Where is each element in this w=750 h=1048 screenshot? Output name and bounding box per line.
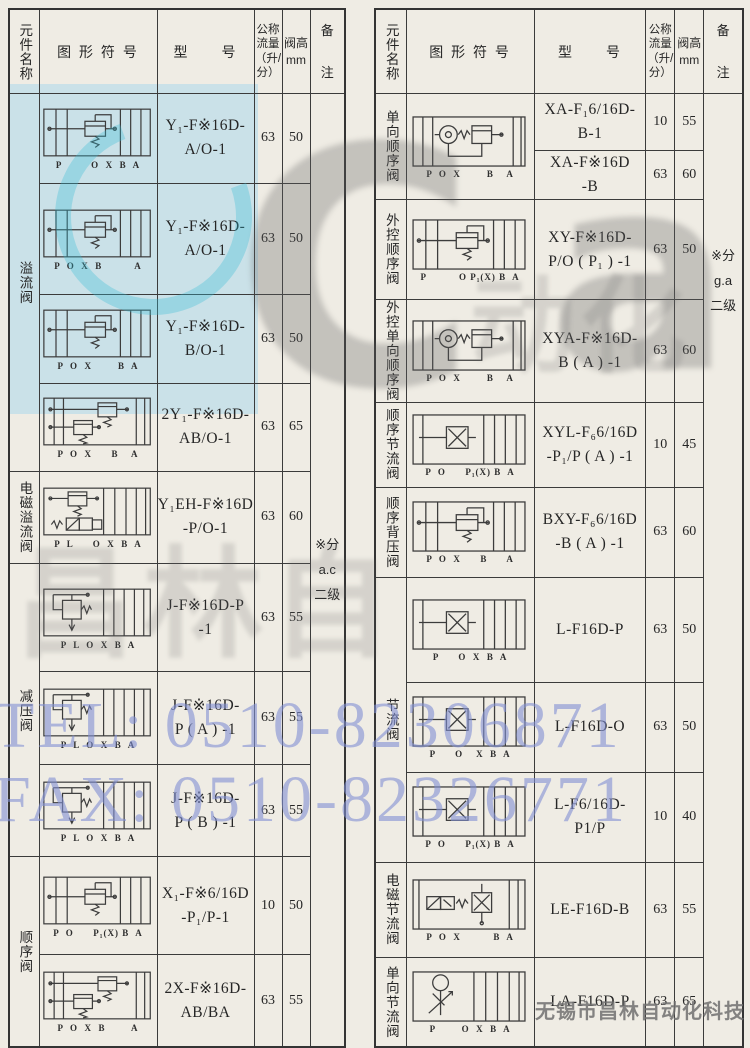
flow-cell: 63 <box>646 682 675 772</box>
model-cell: Y₁-F※16D- A/O-1 <box>157 94 254 183</box>
port-labels: P L O X B A <box>61 833 136 843</box>
table-row: 溢流阀 P O X B A Y₁-F※16D- A/O-1 63 50 ※分 a… <box>9 94 345 183</box>
flow-cell: 63 <box>254 183 282 294</box>
throttle-valve-symbol-icon <box>411 785 529 838</box>
throttle-valve-symbol-icon <box>411 695 529 748</box>
height-cell: 65 <box>675 957 704 1047</box>
flow-cell: 63 <box>254 94 282 183</box>
table-row: 外控顺序阀 P O P₁(X) B A XY-F※16D- P/O ( P₁ )… <box>375 200 743 300</box>
flow-cell: 63 <box>254 564 282 672</box>
symbol-cell: P L O X B A <box>39 564 157 672</box>
table-row: 电磁节流阀 P O X B A LE-F16D-B 63 55 <box>375 862 743 957</box>
model-cell: L-F16D-P <box>534 577 646 682</box>
solenoid-throttle-valve-symbol-icon <box>411 878 529 931</box>
height-cell: 55 <box>675 862 704 957</box>
height-cell: 55 <box>282 955 310 1048</box>
symbol-cell: P O X B A <box>39 183 157 294</box>
symbol-cell: P O X B A <box>406 682 534 772</box>
port-labels: P O X B A <box>57 1023 138 1033</box>
flow-cell: 63 <box>646 862 675 957</box>
model-cell: XY-F※16D- P/O ( P₁ ) -1 <box>534 200 646 300</box>
component-name-cell: 节流阀 <box>375 577 406 862</box>
model-cell: J-F※16D-P -1 <box>157 564 254 672</box>
table-row: 节流阀 P O X B A L-F16D-P 63 50 <box>375 577 743 682</box>
table-row: P O X B A Y₁-F※16D- B/O-1 63 50 <box>9 294 345 383</box>
table-row: P O X B A 2Y₁-F※16D- AB/O-1 63 65 <box>9 384 345 471</box>
flow-cell: 63 <box>646 577 675 682</box>
model-cell: XYA-F※16D- B ( A ) -1 <box>534 300 646 403</box>
flow-cell: 10 <box>646 772 675 862</box>
component-name-cell: 顺序背压阀 <box>375 487 406 577</box>
remark-cell: ※分 g.a 二级 <box>704 94 743 1048</box>
flow-cell: 63 <box>254 672 282 765</box>
model-cell: Y₁EH-F※16D -P/O-1 <box>157 471 254 564</box>
remark-cell: ※分 a.c 二级 <box>310 94 345 1048</box>
table-row: 电磁溢流阀 P L O X B A Y₁EH-F※16D -P/O-1 63 6… <box>9 471 345 564</box>
flow-cell: 63 <box>646 957 675 1047</box>
component-name-cell: 外控单向顺序阀 <box>375 300 406 403</box>
height-cell: 40 <box>675 772 704 862</box>
model-cell: XYL-F₆6/16D -P₁/P ( A ) -1 <box>534 402 646 487</box>
table-row: P L O X B A J-F※16D- P ( A ) -1 63 55 <box>9 672 345 765</box>
col-header-flow: 公称 流量 （升/ 分） <box>646 9 675 94</box>
table-row: P L O X B A J-F※16D- P ( B ) -1 63 55 <box>9 764 345 857</box>
table-row: P O X B A L-F16D-O 63 50 <box>375 682 743 772</box>
component-name-cell: 单向节流阀 <box>375 957 406 1047</box>
model-cell: J-F※16D- P ( A ) -1 <box>157 672 254 765</box>
catalog-tables: 元件名称 图 形 符 号 型 号 公称 流量 （升/ 分） 阀高 mm 备 注 … <box>8 8 744 1048</box>
model-cell: XA-F※16D -B <box>534 151 646 200</box>
model-cell: X₁-F※6/16D -P₁/P-1 <box>157 857 254 955</box>
relief-valve-symbol-icon <box>42 207 154 260</box>
check-throttle-valve-symbol-icon <box>411 970 529 1023</box>
port-labels: P O X B A <box>426 169 514 179</box>
table-header-row: 元件名称 图 形 符 号 型 号 公称 流量 （升/ 分） 阀高 mm 备 注 <box>9 9 345 94</box>
symbol-cell: P O X B A <box>39 384 157 471</box>
port-labels: P O X B A <box>57 361 138 371</box>
symbol-cell: P O X B A <box>39 94 157 183</box>
col-header-model: 型 号 <box>534 9 646 94</box>
flow-cell: 10 <box>646 94 675 151</box>
model-cell: J-F※16D- P ( B ) -1 <box>157 764 254 857</box>
flow-cell: 63 <box>254 294 282 383</box>
table-row: 顺序阀 P O P₁(X) B A X₁-F※6/16D -P₁/P-1 10 … <box>9 857 345 955</box>
port-labels: P O X B A <box>57 449 138 459</box>
col-header-model: 型 号 <box>157 9 254 94</box>
table-row: 单向顺序阀 P O X B A XA-F₁6/16D- B-1 10 55 ※分… <box>375 94 743 151</box>
height-cell: 60 <box>675 151 704 200</box>
symbol-cell: P O X B A <box>406 577 534 682</box>
port-labels: P O P₁(X) B A <box>425 839 514 849</box>
sequence-throttle-valve-symbol-icon <box>411 413 529 466</box>
port-labels: P O X B A <box>56 160 140 170</box>
height-cell: 50 <box>282 183 310 294</box>
symbol-cell: P O P₁(X) B A <box>406 772 534 862</box>
model-cell: LE-F16D-B <box>534 862 646 957</box>
port-labels: P O X B A <box>426 554 514 564</box>
height-cell: 50 <box>675 682 704 772</box>
col-header-remark: 备 注 <box>704 9 743 94</box>
port-labels: P L O X B A <box>54 539 142 549</box>
height-cell: 45 <box>675 402 704 487</box>
port-labels: P O X B A <box>54 261 142 271</box>
port-labels: P L O X B A <box>61 740 136 750</box>
port-labels: P O X B A <box>426 932 514 942</box>
flow-cell: 10 <box>646 402 675 487</box>
col-header-component-name: 元件名称 <box>375 9 406 94</box>
symbol-cell: P O P₁(X) B A <box>39 857 157 955</box>
model-cell: XA-F₁6/16D- B-1 <box>534 94 646 151</box>
height-cell: 50 <box>282 94 310 183</box>
relief-valve-symbol-icon <box>42 307 154 360</box>
table-row: 单向节流阀 P O X B A LA-F16D-P 63 65 <box>375 957 743 1047</box>
height-cell: 60 <box>675 487 704 577</box>
height-cell: 65 <box>282 384 310 471</box>
table-row: 减压阀 P L O X B A J-F※16D-P -1 63 55 <box>9 564 345 672</box>
symbol-cell: P O X B A <box>406 94 534 200</box>
solenoid-relief-valve-symbol-icon <box>42 485 154 538</box>
symbol-cell: P O X B A <box>406 957 534 1047</box>
throttle-valve-symbol-icon <box>411 598 529 651</box>
height-cell: 55 <box>282 764 310 857</box>
component-name-cell: 溢流阀 <box>9 94 39 471</box>
reducing-valve-symbol-icon <box>42 586 154 639</box>
symbol-cell: P L O X B A <box>39 672 157 765</box>
height-cell: 50 <box>282 857 310 955</box>
table-row: P O X B A 2X-F※16D- AB/BA 63 55 <box>9 955 345 1048</box>
height-cell: 55 <box>282 672 310 765</box>
valve-table-right: 元件名称 图 形 符 号 型 号 公称 流量 （升/ 分） 阀高 mm 备 注 … <box>374 8 744 1048</box>
symbol-cell: P O X B A <box>406 862 534 957</box>
col-header-flow: 公称 流量 （升/ 分） <box>254 9 282 94</box>
relief-valve-symbol-icon <box>42 106 154 159</box>
component-name-cell: 电磁溢流阀 <box>9 471 39 564</box>
flow-cell: 63 <box>254 471 282 564</box>
reducing-valve-symbol-icon <box>42 686 154 739</box>
flow-cell: 63 <box>646 300 675 403</box>
symbol-cell: P O X B A <box>39 294 157 383</box>
port-labels: P O P₁(X) B A <box>53 928 142 938</box>
height-cell: 60 <box>282 471 310 564</box>
height-cell: 55 <box>675 94 704 151</box>
flow-cell: 63 <box>254 764 282 857</box>
symbol-cell: P O X B A <box>406 487 534 577</box>
check-sequence-valve-symbol-icon <box>411 115 529 168</box>
flow-cell: 63 <box>646 151 675 200</box>
col-header-symbol: 图 形 符 号 <box>39 9 157 94</box>
port-labels: P L O X B A <box>61 640 136 650</box>
symbol-cell: P L O X B A <box>39 471 157 564</box>
model-cell: L-F6/16D- P1/P <box>534 772 646 862</box>
flow-cell: 63 <box>646 487 675 577</box>
port-labels: P O P₁(X) B A <box>425 467 514 477</box>
symbol-cell: P O P₁(X) B A <box>406 402 534 487</box>
flow-cell: 63 <box>646 200 675 300</box>
height-cell: 60 <box>675 300 704 403</box>
port-labels: P O P₁(X) B A <box>420 272 519 282</box>
table-row: 顺序背压阀 P O X B A BXY-F₆6/16D -B ( A ) -1 … <box>375 487 743 577</box>
component-name-cell: 电磁节流阀 <box>375 862 406 957</box>
component-name-cell: 顺序阀 <box>9 857 39 1047</box>
table-row: 外控单向顺序阀 P O X B A XYA-F※16D- B ( A ) -1 … <box>375 300 743 403</box>
model-cell: 2X-F※16D- AB/BA <box>157 955 254 1048</box>
double-sequence-valve-symbol-icon <box>42 969 154 1022</box>
component-name-cell: 顺序节流阀 <box>375 402 406 487</box>
flow-cell: 63 <box>254 955 282 1048</box>
col-header-symbol: 图 形 符 号 <box>406 9 534 94</box>
symbol-cell: P O P₁(X) B A <box>406 200 534 300</box>
symbol-cell: P O X B A <box>39 955 157 1048</box>
reducing-valve-symbol-icon <box>42 779 154 832</box>
table-header-row: 元件名称 图 形 符 号 型 号 公称 流量 （升/ 分） 阀高 mm 备 注 <box>375 9 743 94</box>
symbol-cell: P L O X B A <box>39 764 157 857</box>
col-header-remark: 备 注 <box>310 9 345 94</box>
port-labels: P O X B A <box>426 373 514 383</box>
table-row: P O X B A Y₁-F※16D- A/O-1 63 50 <box>9 183 345 294</box>
table-row: 顺序节流阀 P O P₁(X) B A XYL-F₆6/16D -P₁/P ( … <box>375 402 743 487</box>
valve-table-left: 元件名称 图 形 符 号 型 号 公称 流量 （升/ 分） 阀高 mm 备 注 … <box>8 8 346 1048</box>
symbol-cell: P O X B A <box>406 300 534 403</box>
double-relief-valve-symbol-icon <box>42 395 154 448</box>
back-pressure-valve-symbol-icon <box>411 500 529 553</box>
height-cell: 50 <box>282 294 310 383</box>
sequence-valve-symbol-icon <box>42 874 154 927</box>
pilot-sequence-valve-symbol-icon <box>411 218 529 271</box>
model-cell: 2Y₁-F※16D- AB/O-1 <box>157 384 254 471</box>
flow-cell: 63 <box>254 384 282 471</box>
component-name-cell: 单向顺序阀 <box>375 94 406 200</box>
height-cell: 50 <box>675 577 704 682</box>
model-cell: Y₁-F※16D- A/O-1 <box>157 183 254 294</box>
col-header-component-name: 元件名称 <box>9 9 39 94</box>
pilot-check-sequence-valve-symbol-icon <box>411 319 529 372</box>
port-labels: P O X B A <box>430 1024 511 1034</box>
port-labels: P O X B A <box>430 749 511 759</box>
col-header-valve-height: 阀高 mm <box>675 9 704 94</box>
component-name-cell: 减压阀 <box>9 564 39 857</box>
flow-cell: 10 <box>254 857 282 955</box>
model-cell: BXY-F₆6/16D -B ( A ) -1 <box>534 487 646 577</box>
port-labels: P O X B A <box>433 652 508 662</box>
height-cell: 50 <box>675 200 704 300</box>
model-cell: L-F16D-O <box>534 682 646 772</box>
height-cell: 55 <box>282 564 310 672</box>
col-header-valve-height: 阀高 mm <box>282 9 310 94</box>
table-row: P O P₁(X) B A L-F6/16D- P1/P 10 40 <box>375 772 743 862</box>
model-cell: Y₁-F※16D- B/O-1 <box>157 294 254 383</box>
component-name-cell: 外控顺序阀 <box>375 200 406 300</box>
model-cell: LA-F16D-P <box>534 957 646 1047</box>
